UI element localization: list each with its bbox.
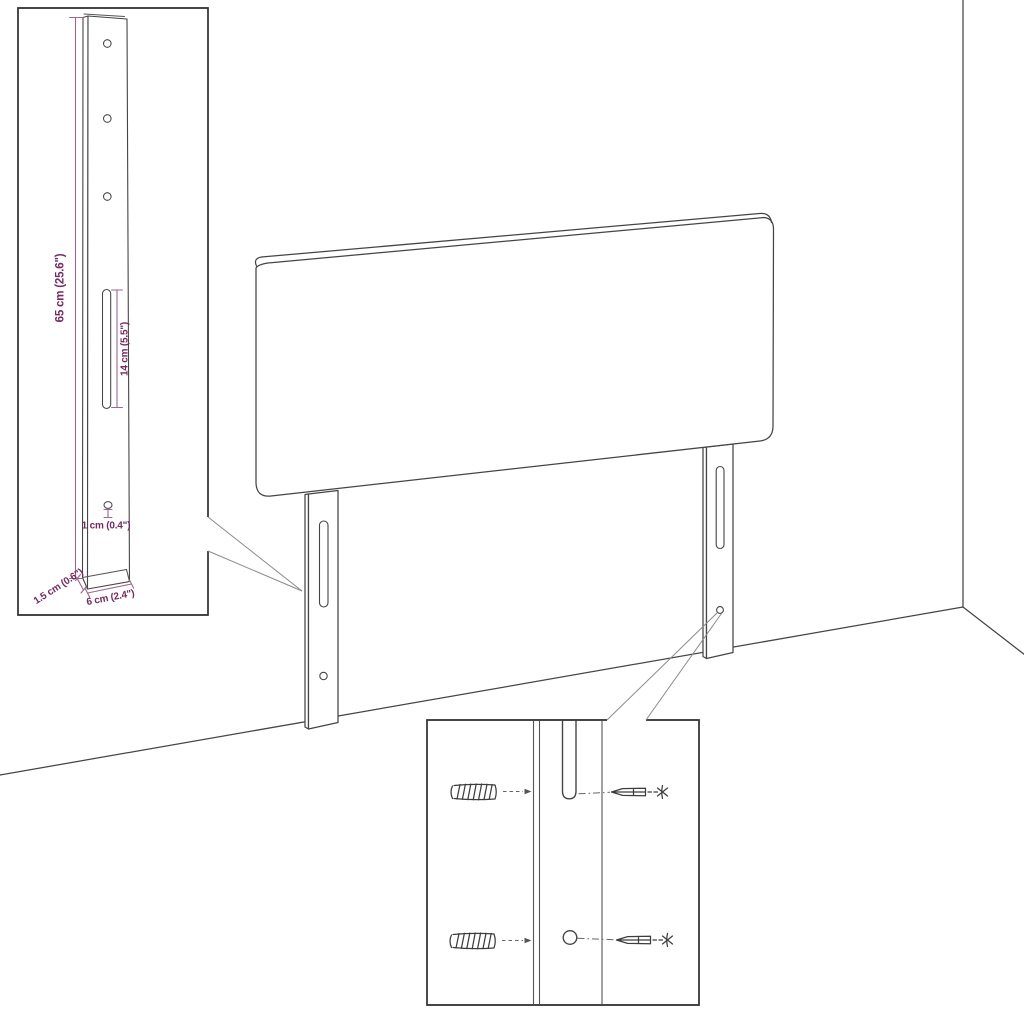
detail-leg-small-hole	[104, 502, 112, 509]
callout-lines-left	[208, 517, 302, 591]
headboard-front-face	[256, 218, 774, 497]
left-leg-hole	[320, 672, 327, 679]
right-leg	[703, 444, 733, 659]
floor-line-right	[963, 607, 1024, 655]
detail-leg-slot	[103, 290, 111, 409]
headboard-panel	[255, 213, 773, 496]
detail-screw-hole-2	[104, 115, 112, 123]
diagram-page: 65 cm (25.6") 14 cm (5.5") 1 cm (0.4") 1…	[0, 0, 1024, 1024]
left-leg	[305, 491, 338, 730]
left-leg-slot	[320, 521, 329, 607]
detail-screw-hole-1	[104, 40, 112, 48]
dim-label-slot-length: 14 cm (5.5")	[120, 322, 131, 376]
diagram-canvas: 65 cm (25.6") 14 cm (5.5") 1 cm (0.4") 1…	[0, 0, 1024, 1024]
detail-screw-hole-3	[104, 193, 112, 201]
dim-label-leg-height: 65 cm (25.6")	[55, 253, 67, 322]
right-leg-slot	[716, 467, 724, 549]
dim-label-hole-size: 1 cm (0.4")	[82, 521, 131, 532]
right-leg-hole	[717, 607, 724, 614]
